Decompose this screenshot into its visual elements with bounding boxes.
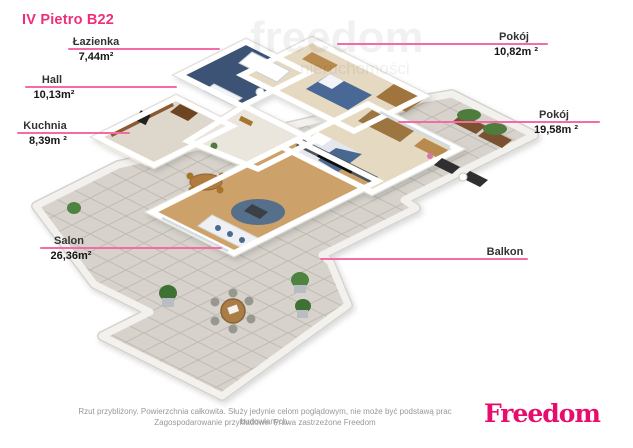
floorplan-page: freedom nieruchomości IV Pietro B22 Łazi… <box>0 0 633 448</box>
label-lazienka-line <box>68 48 220 50</box>
label-balkon-line <box>320 258 528 260</box>
label-hall-line <box>25 86 177 88</box>
label-pokoj-2-line <box>398 121 600 123</box>
floor-plan-3d-illustration: freedom nieruchomości <box>0 0 633 448</box>
disclaimer-line-2: Zagospodarowanie przykładowe. Prawa zast… <box>55 418 475 428</box>
label-hall-name: Hall <box>0 74 112 86</box>
label-hall-value: 10,13m² <box>0 89 114 101</box>
page-title: IV Pietro B22 <box>22 12 114 28</box>
label-salon-name: Salon <box>9 235 129 247</box>
label-balkon-name: Balkon <box>445 246 565 258</box>
label-salon-line <box>40 247 222 249</box>
label-kuchnia-line <box>17 132 130 134</box>
label-pokoj-1-value: 10,82m ² <box>456 46 576 58</box>
label-pokoj-2-value: 19,58m ² <box>496 124 616 136</box>
label-lazienka-value: 7,44m² <box>36 51 156 63</box>
label-kuchnia-name: Kuchnia <box>0 120 105 132</box>
label-salon-value: 26,36m² <box>11 250 131 262</box>
label-lazienka-name: Łazienka <box>36 36 156 48</box>
label-kuchnia-value: 8,39m ² <box>0 135 108 147</box>
label-pokoj-1-name: Pokój <box>454 31 574 43</box>
label-pokoj-2-name: Pokój <box>494 109 614 121</box>
label-pokoj-1-line <box>337 43 548 45</box>
freedom-logo: Freedom <box>484 399 624 428</box>
